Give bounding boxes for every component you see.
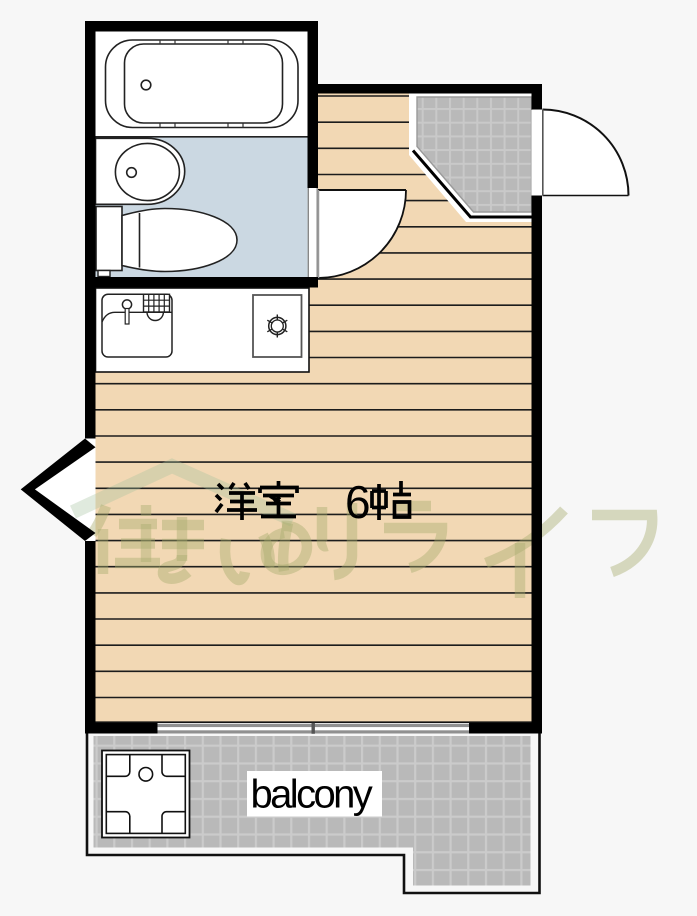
svg-text:balcony: balcony [251, 773, 373, 817]
svg-text:6: 6 [345, 476, 371, 528]
